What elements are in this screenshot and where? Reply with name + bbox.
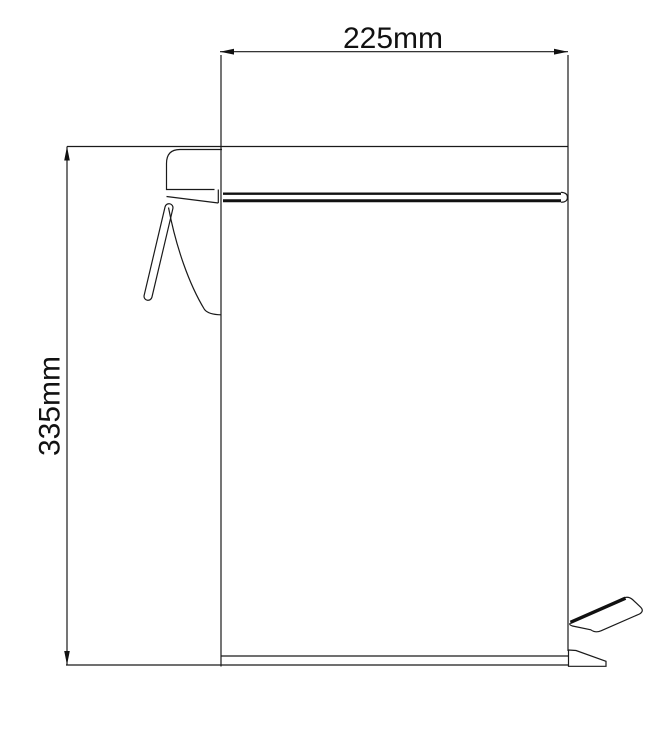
vertical-dimension: 335mm — [34, 147, 569, 666]
pedal-base-foot — [569, 650, 607, 666]
dimension-arrow-down-icon — [64, 651, 70, 665]
horizontal-dimension: 225mm — [220, 22, 568, 55]
lid-rim-right-cap — [561, 192, 567, 202]
pedal-pad — [570, 597, 643, 632]
pedal-bin-technical-drawing: 225mm 335mm — [0, 0, 659, 741]
bin-lid — [221, 147, 568, 203]
dimension-arrow-left-icon — [220, 49, 234, 55]
dimension-arrow-up-icon — [64, 147, 70, 161]
lever-arc — [169, 208, 222, 315]
pedal-assembly — [569, 597, 643, 666]
hinge-housing — [167, 150, 223, 190]
hinge-lever-rod — [143, 203, 174, 301]
width-dimension-label: 225mm — [343, 22, 443, 55]
height-dimension-label: 335mm — [34, 356, 67, 456]
drawing-canvas: 225mm 335mm — [0, 0, 659, 741]
dimension-arrow-right-icon — [554, 49, 568, 55]
hinge-mechanism — [143, 150, 222, 315]
lid-underside-edge — [167, 197, 219, 204]
